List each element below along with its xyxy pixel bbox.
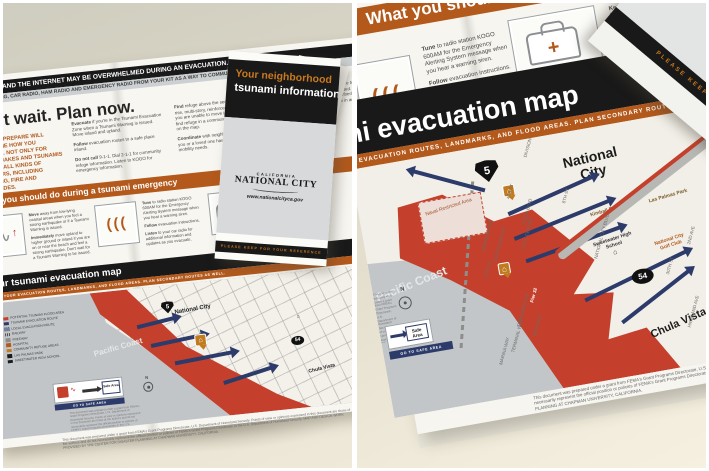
city-label: National City: [547, 141, 636, 189]
hazard-wave-icon: ∿: [70, 385, 77, 394]
school-marker-icon: ⌂: [296, 314, 300, 320]
route-arrow-icon: [413, 169, 486, 192]
step-column-move: Move away from low-lying coastal areas w…: [28, 206, 93, 263]
plan-intro: HOW YOU PREPARE WILL DETERMINE HOW YOU R…: [3, 130, 68, 195]
compass-icon: [143, 381, 154, 392]
refuge-pin-icon: ⌂: [194, 333, 207, 346]
photo-right-panel: What you should do during a tsunami emer…: [357, 3, 706, 468]
siren-waves-icon: (((: [106, 214, 129, 233]
siren-icon-box: (((: [94, 201, 140, 247]
school-marker-icon: ⌂: [613, 249, 618, 257]
inset-arrow-icon: [82, 388, 98, 392]
i5-shield: 5: [473, 158, 500, 184]
hwy54-shield: 54: [631, 267, 655, 286]
railway-chip: [5, 333, 10, 337]
step-item: Immediately move upland to higher ground…: [31, 229, 93, 260]
local-route-chip: [4, 327, 9, 331]
plan-column-1: Evacuate if you're in the Tsunami Evacua…: [71, 112, 170, 178]
duffle-bag-icon: +: [525, 25, 582, 66]
cover-header: Your neighborhood tsunami information: [224, 59, 340, 125]
photo-left-panel: PHONES AND THE INTERNET MAY BE OVERWHELM…: [3, 3, 352, 468]
step-item: Tune to radio station KOGO 600AM for the…: [142, 194, 204, 220]
step-item: Move away from low-lying coastal areas w…: [28, 206, 90, 232]
safe-area-label: Safe Area: [405, 323, 429, 342]
map-legend: POTENTIAL TSUNAMI FLOOD AREA TSUNAMI EVA…: [3, 306, 108, 365]
safe-area-label: Safe Area: [101, 380, 120, 395]
person-up-icon: ↑: [10, 213, 20, 253]
freeway-chip: [5, 338, 10, 342]
cover-brochure: Your neighborhood tsunami information CA…: [214, 51, 340, 266]
inset-arrow-icon: [390, 333, 404, 338]
refuge-chip: [7, 349, 12, 353]
las-palmas-park-label: Las Palmas Park: [648, 188, 688, 205]
flood-chip: [3, 317, 8, 321]
step-item: Listen to your car radio for additional …: [145, 225, 206, 246]
compass-n-label: N: [145, 375, 148, 380]
hospital-chip: [6, 343, 11, 347]
refuge-pin-icon: ⌂: [497, 262, 511, 276]
step-column-radio: Tune to radio station KOGO 600AM for the…: [142, 194, 207, 249]
route-chip: [4, 322, 9, 326]
keep-reference-strip: PLEASE KEEP FOR YOUR REFERENCE: [215, 241, 327, 260]
park-chip: [7, 354, 12, 358]
street-label: 2ND AVE: [686, 226, 696, 245]
school-chip: [8, 360, 13, 364]
wave-icon-box: ∿ ↑: [3, 213, 27, 259]
desk-photo-diptych: PHONES AND THE INTERNET MAY BE OVERWHELM…: [0, 0, 709, 471]
tsunami-hazard-sign-icon: [57, 386, 69, 398]
compass-n-label: N: [400, 286, 405, 293]
